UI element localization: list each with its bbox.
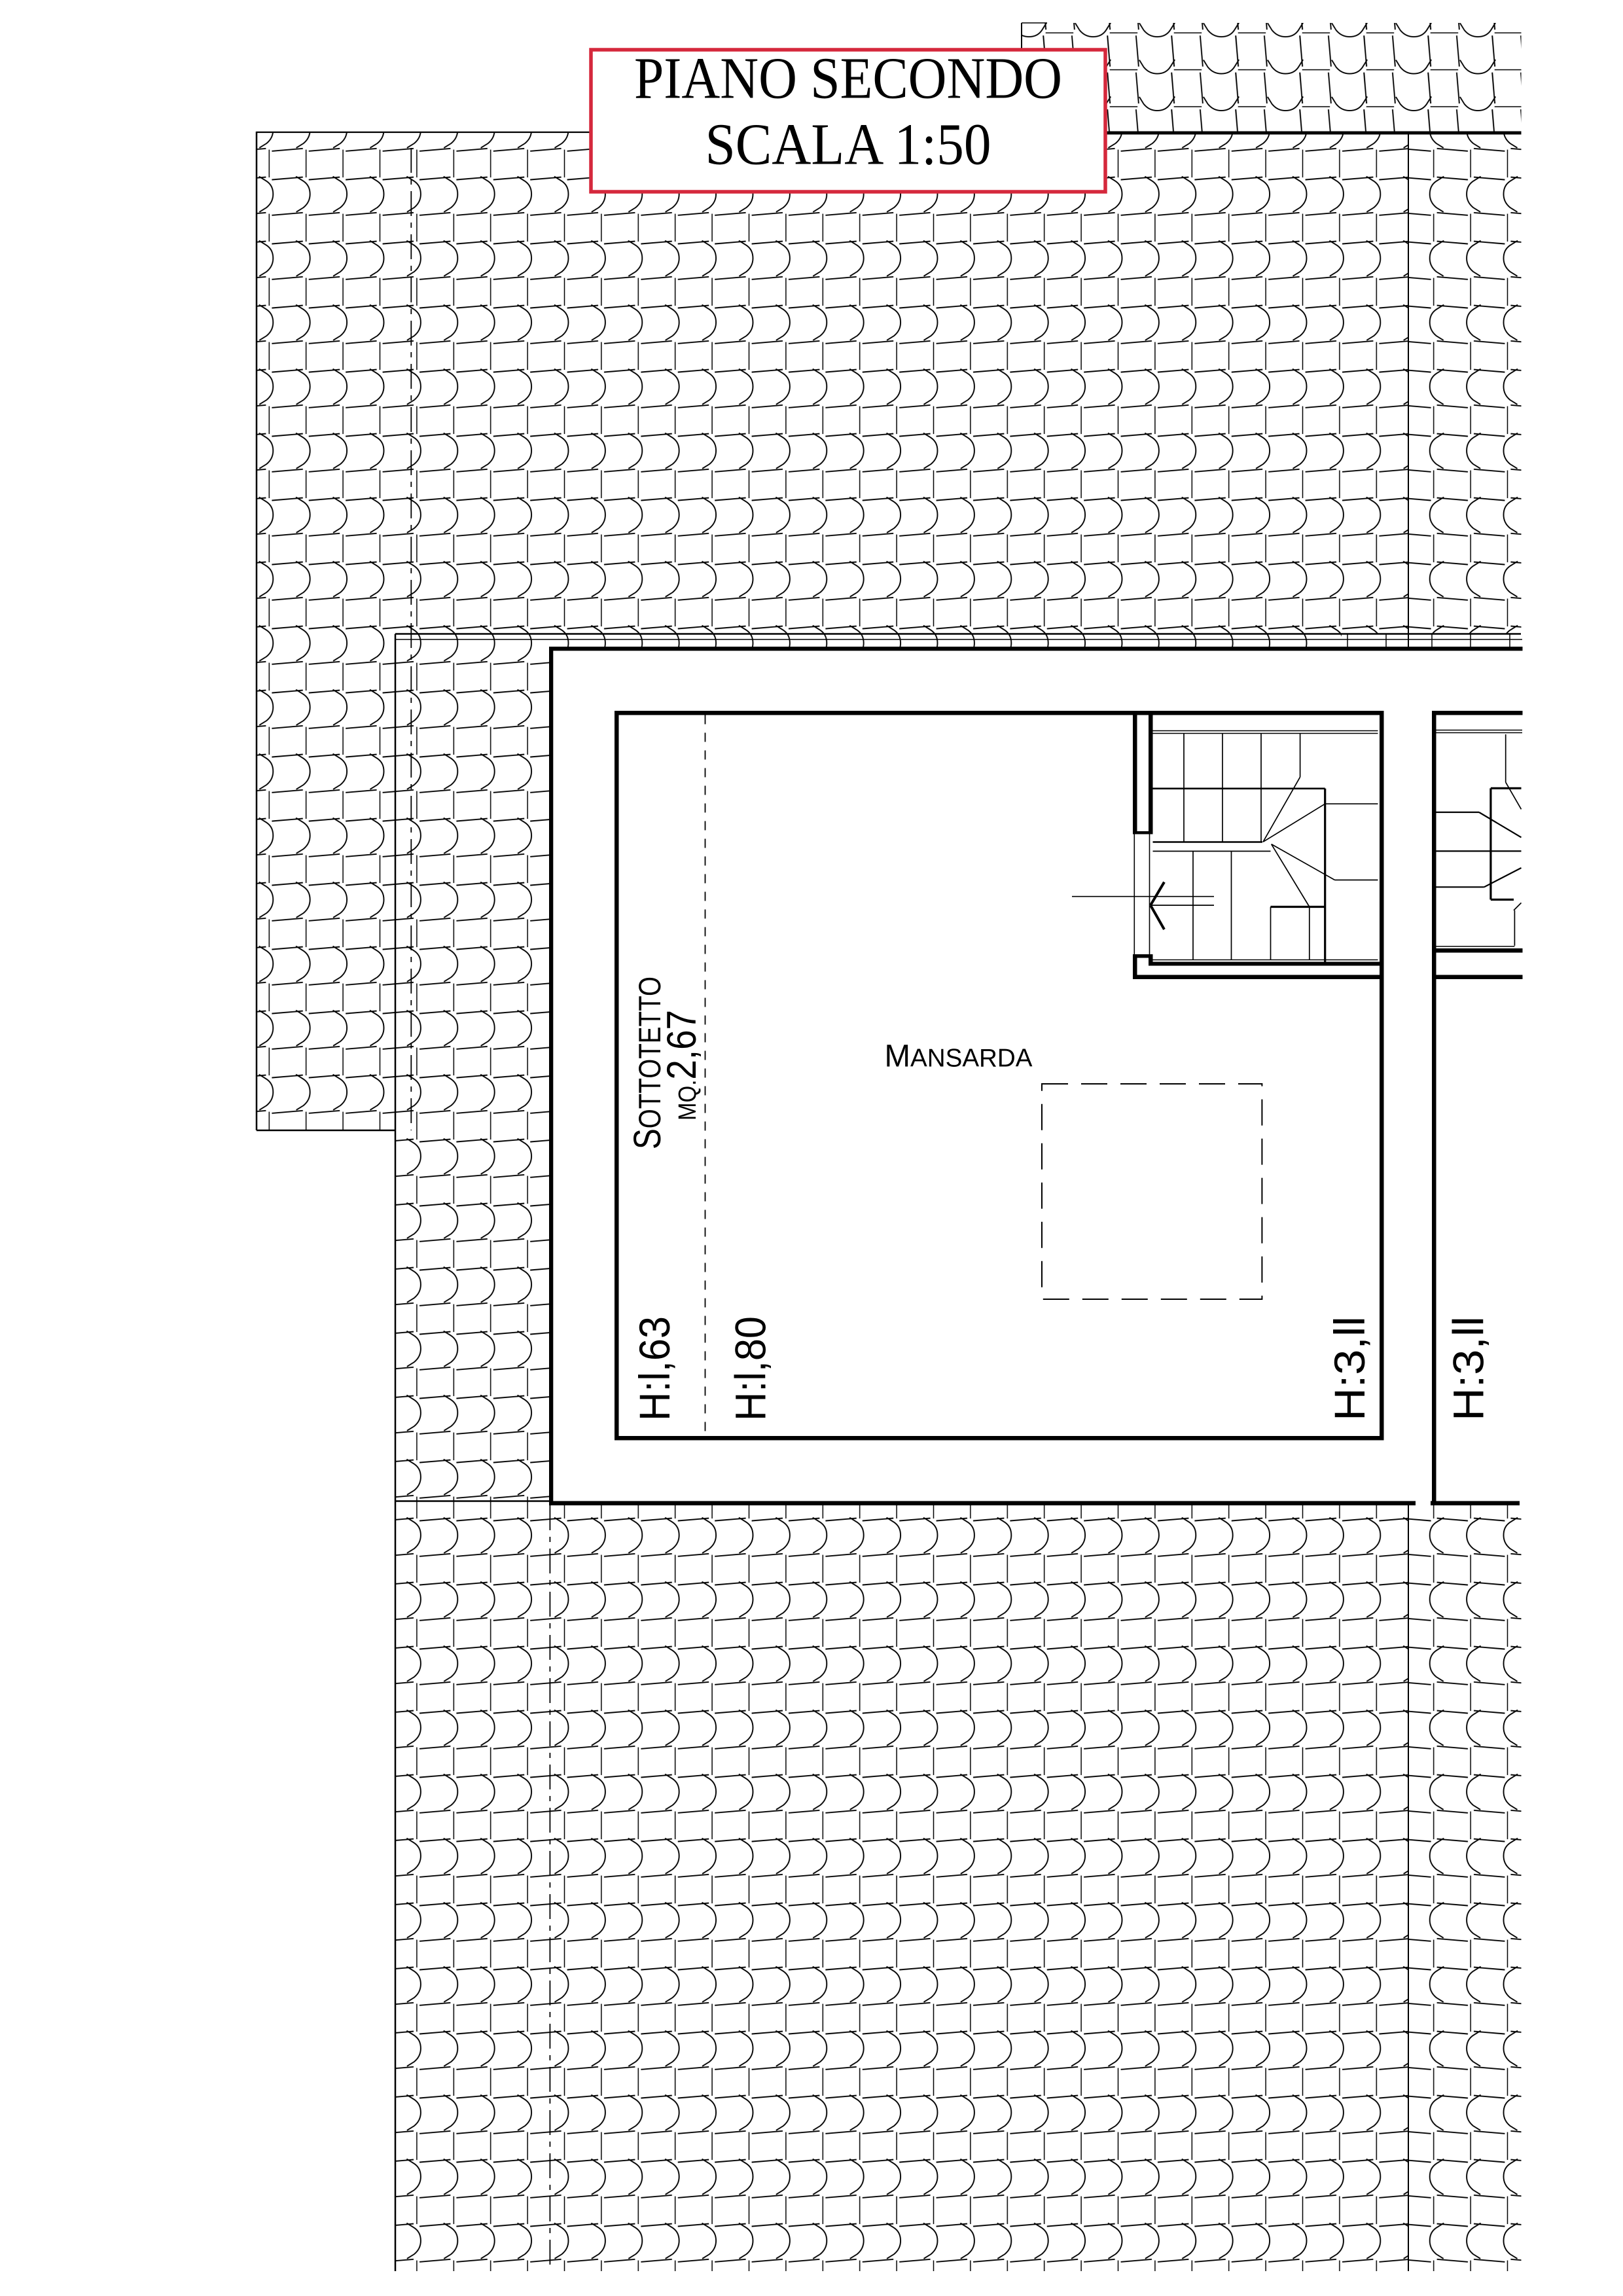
svg-text:SCALA 1:50: SCALA 1:50 <box>705 112 991 177</box>
svg-text:MANSARDA: MANSARDA <box>885 1039 1033 1074</box>
svg-text:H:l,80: H:l,80 <box>726 1316 775 1421</box>
svg-text:PIANO SECONDO: PIANO SECONDO <box>634 46 1062 111</box>
svg-text:H:3,ll: H:3,ll <box>1325 1316 1374 1421</box>
svg-text:H:3,ll: H:3,ll <box>1444 1316 1493 1421</box>
svg-text:H:l,63: H:l,63 <box>630 1316 679 1421</box>
